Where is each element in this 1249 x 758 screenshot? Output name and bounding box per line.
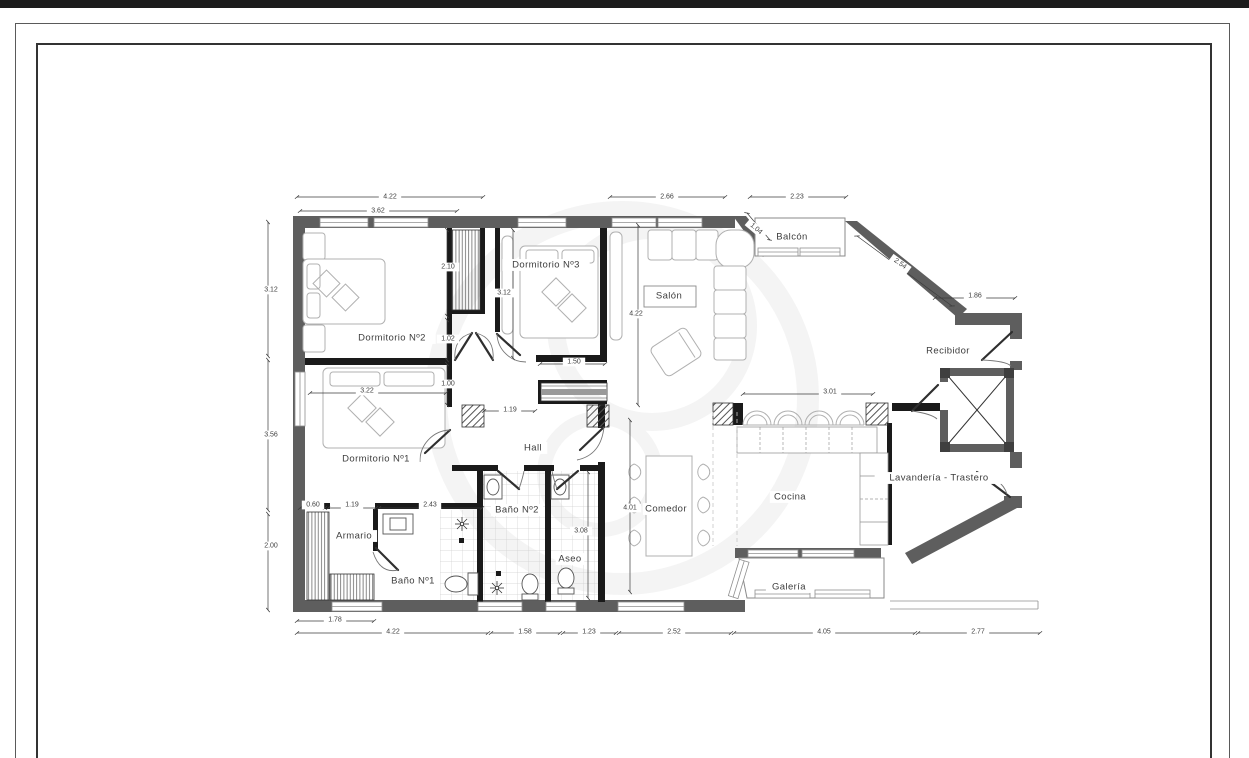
toilet-aseo [558, 568, 574, 594]
dim-label: 2.43 [423, 502, 437, 509]
dim-label: 3.01 [823, 389, 837, 396]
dim-label: 1.02 [441, 336, 455, 343]
shower-symbol-1 [455, 517, 469, 531]
dim-label: 4.22 [383, 194, 397, 201]
dim-label: 3.22 [360, 388, 374, 395]
wardrobe-armario-left [307, 512, 329, 600]
label-balcon: Balcón [776, 232, 807, 243]
dim-label: 3.62 [371, 208, 385, 215]
dim-label: 2.52 [667, 629, 681, 636]
dim-label: 2.77 [971, 629, 985, 636]
dim-label: 1.19 [503, 407, 517, 414]
door-dormitorio-3 [497, 334, 526, 362]
dim-label: 1.78 [328, 617, 342, 624]
dim-label: 1.19 [345, 502, 359, 509]
label-cocina: Cocina [774, 492, 806, 503]
label-aseo: Aseo [558, 554, 581, 565]
label-comedor: Comedor [645, 504, 687, 515]
radiator-dormitorio-3 [502, 236, 513, 334]
dim-label: 4.22 [629, 311, 643, 318]
label-dormitorio-2: Dormitorio Nº2 [358, 333, 426, 344]
dim-label: 4.22 [386, 629, 400, 636]
dim-label: 1.00 [441, 381, 455, 388]
dim-label: 2.66 [660, 194, 674, 201]
dim-label: 3.12 [264, 287, 278, 294]
bed-dormitorio-1 [323, 368, 445, 448]
label-galeria: Galería [772, 582, 806, 593]
dim-label: 1.50 [567, 359, 581, 366]
label-bano-1: Baño Nº1 [391, 576, 435, 587]
dim-label: 3.12 [497, 290, 511, 297]
label-recibidor: Recibidor [926, 346, 970, 357]
dim-label: 3.08 [574, 528, 588, 535]
door-hall-comedor [577, 427, 604, 460]
wardrobe-armario-bottom [330, 574, 374, 600]
dim-label: 1.86 [968, 293, 982, 300]
label-dormitorio-1: Dormitorio Nº1 [342, 454, 410, 465]
door-armario-bano-1 [373, 548, 398, 571]
sink-bano-2 [484, 475, 502, 499]
toilet-bano-2 [522, 574, 538, 600]
label-hall: Hall [524, 443, 542, 454]
label-bano-2: Baño Nº2 [495, 505, 539, 516]
dim-label: 1.23 [582, 629, 596, 636]
dim-label: 0.60 [306, 502, 320, 509]
dim-label: 3.56 [264, 432, 278, 439]
page: 4.223.622.662.231.042.541.863.123.562.00… [0, 0, 1249, 758]
shower-symbol-2 [490, 581, 504, 595]
door-corridor-double [455, 333, 493, 360]
label-salon: Salón [656, 291, 682, 302]
door-elevator [912, 385, 938, 419]
dim-label: 1.58 [518, 629, 532, 636]
floor-plan-svg: 4.223.622.662.231.042.541.863.123.562.00… [0, 0, 1249, 758]
armchair-salon [649, 326, 703, 377]
dim-label: 4.05 [817, 629, 831, 636]
dim-label: 2.23 [790, 194, 804, 201]
elevator-shaft [940, 368, 1014, 452]
dim-label: 4.01 [623, 505, 637, 512]
label-armario: Armario [336, 531, 372, 542]
label-dormitorio-3: Dormitorio Nº3 [512, 260, 580, 271]
label-lavanderia-trastero: Lavandería - Trastero [889, 473, 988, 484]
door-recibidor-entry [982, 332, 1012, 366]
dim-label: 2.10 [441, 264, 455, 271]
dim-label: 2.00 [264, 543, 278, 550]
radiator-salon [610, 232, 622, 340]
